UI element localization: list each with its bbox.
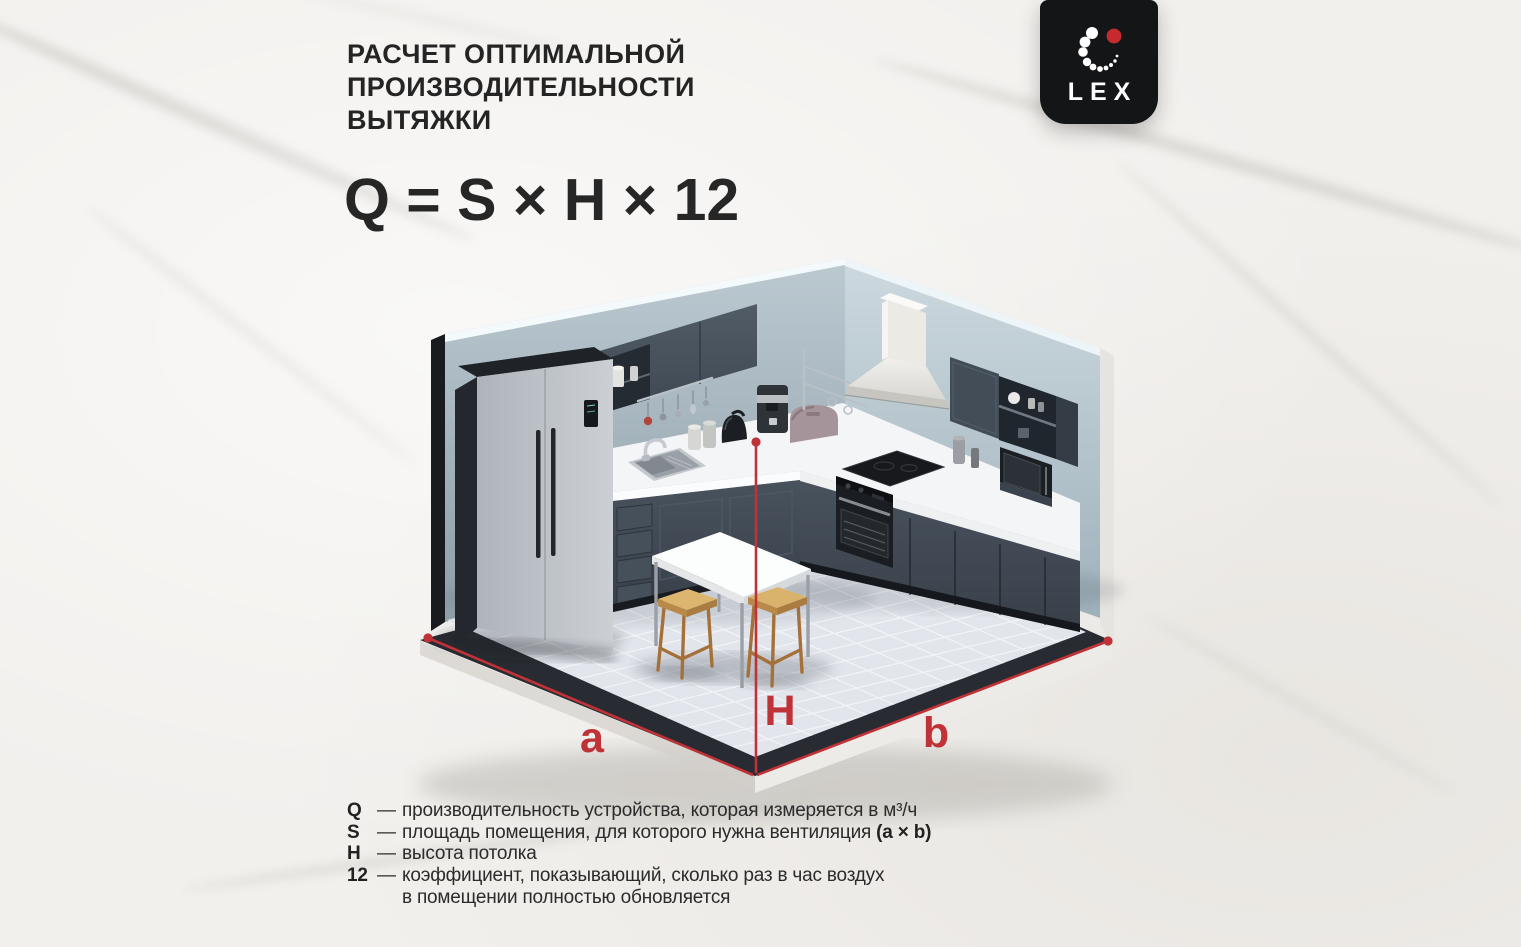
legend-row: H—высота потолка [347, 843, 931, 865]
legend-row: S—площадь помещения, для которого нужна … [347, 822, 931, 844]
dimension-label-a: a [580, 714, 605, 762]
refrigerator [455, 347, 615, 661]
dimension-label-b: b [923, 709, 949, 757]
legend-symbol: 12 [347, 865, 377, 887]
legend-symbol: Q [347, 800, 377, 822]
legend-dash: — [377, 800, 402, 822]
legend-dash: — [377, 865, 402, 887]
legend-text: высота потолка [402, 843, 537, 865]
legend: Q—производительность устройства, которая… [347, 800, 931, 909]
legend-dash: — [377, 843, 402, 865]
legend-text: площадь помещения, для которого нужна ве… [402, 822, 931, 844]
legend-dash: — [377, 822, 402, 844]
legend-row: Q—производительность устройства, которая… [347, 800, 931, 822]
legend-row: 12—коэффициент, показывающий, сколько ра… [347, 865, 931, 908]
dimension-label-h: H [764, 687, 795, 735]
legend-text: производительность устройства, которая и… [402, 800, 917, 822]
legend-symbol: S [347, 822, 377, 844]
legend-symbol: H [347, 843, 377, 865]
legend-text: коэффициент, показывающий, сколько раз в… [402, 865, 884, 908]
coffee-machine [757, 385, 788, 433]
